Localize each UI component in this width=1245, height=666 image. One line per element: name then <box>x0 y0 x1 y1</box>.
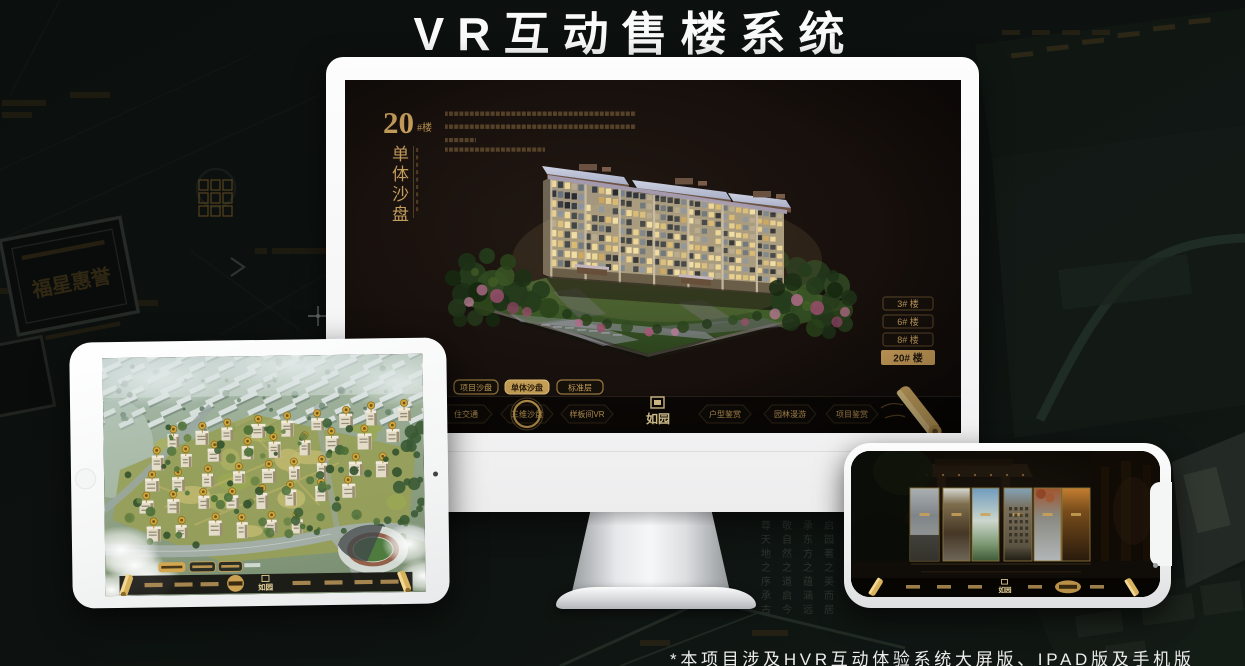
svg-text:承东方之蕴涵远: 承东方之蕴涵远 <box>801 520 813 618</box>
svg-text:尊天地之序承古: 尊天地之序承古 <box>759 519 771 618</box>
svg-text:敬自然之道启今: 敬自然之道启今 <box>780 519 792 618</box>
svg-text:如园: 如园 <box>999 585 1013 594</box>
svg-text:启园著之美而居: 启园著之美而居 <box>822 519 834 618</box>
svg-text:如园: 如园 <box>258 582 274 592</box>
